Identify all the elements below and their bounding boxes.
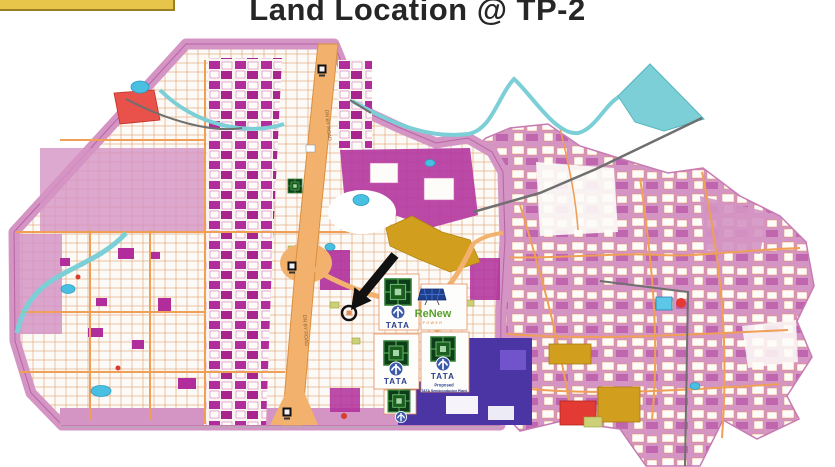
renew-wordmark: ReNew bbox=[415, 308, 452, 320]
cyan-parcel bbox=[656, 297, 672, 310]
tata-roundel-icon bbox=[395, 411, 406, 422]
proposed-plant-label: TATA Semiconductor Plant bbox=[421, 389, 467, 393]
tata-wordmark: TATA bbox=[431, 372, 455, 381]
red-parcel bbox=[114, 90, 160, 124]
gold-parcel bbox=[598, 387, 640, 422]
tp2-map: DN BY ROAD DN BY ROAD T bbox=[0, 0, 835, 467]
renew-subtext: POWER bbox=[423, 321, 444, 325]
tata-roundel-icon bbox=[391, 305, 405, 319]
proposed-label: Proposed bbox=[434, 383, 454, 388]
semiconductor-chip-icon bbox=[384, 341, 408, 365]
tata-roundel-icon bbox=[436, 357, 450, 371]
slide: Land Location @ TP-2 bbox=[0, 0, 835, 467]
red-parcel bbox=[676, 298, 686, 308]
semiconductor-chip-icon bbox=[288, 179, 302, 193]
gold-parcel bbox=[549, 344, 591, 364]
tata-roundel-icon bbox=[389, 362, 403, 376]
lake bbox=[618, 64, 704, 131]
semiconductor-chip-icon bbox=[388, 390, 410, 412]
tata-wordmark: TATA bbox=[386, 321, 410, 330]
semiconductor-chip-icon bbox=[385, 279, 411, 305]
tata-wordmark: TATA bbox=[384, 377, 408, 386]
